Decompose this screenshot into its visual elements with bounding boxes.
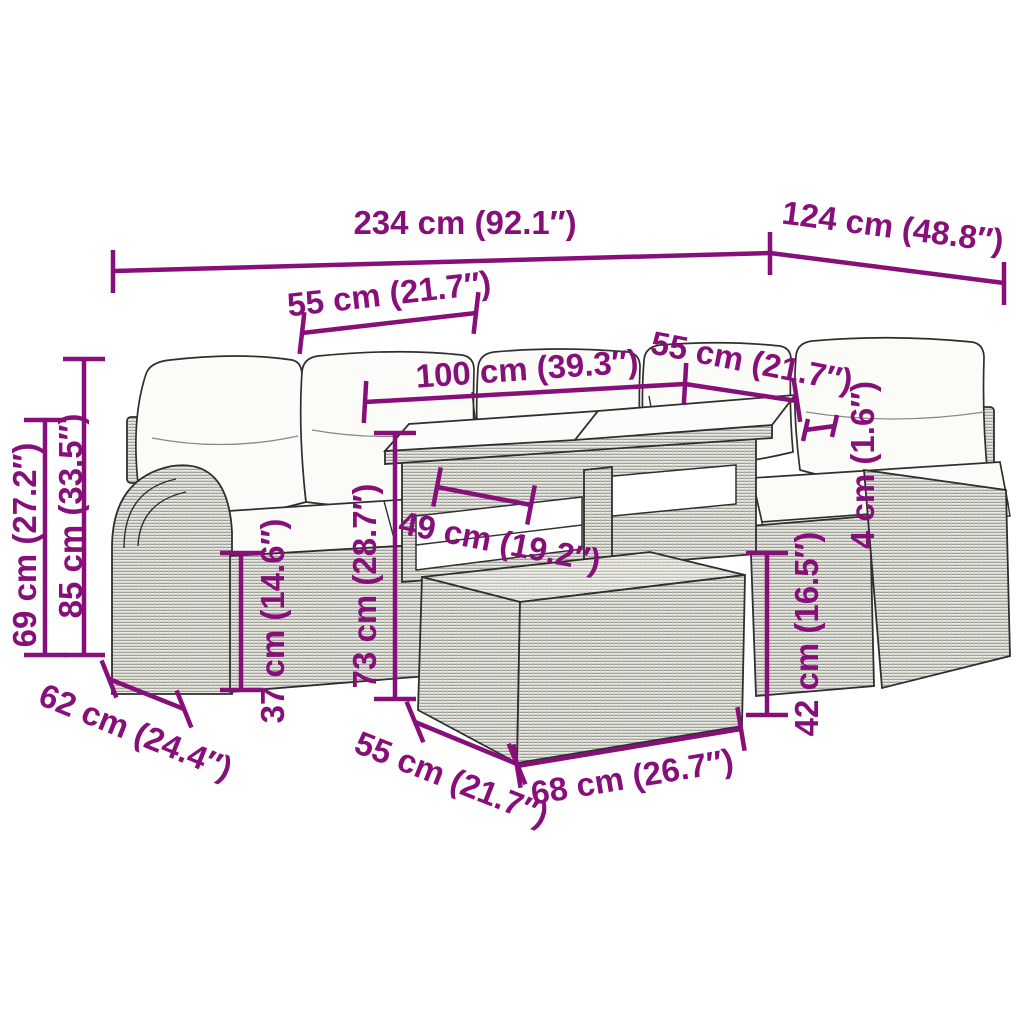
right-armchair-body [864, 470, 1010, 688]
dim-label-ottoman-height: 42 cm (16.5″) [788, 532, 825, 737]
dim-label-total-width: 234 cm (92.1″) [353, 204, 576, 241]
dim-back-height: 85 cm (33.5″) [52, 359, 105, 655]
dim-label-seat-height: 37 cm (14.6″) [254, 519, 291, 724]
dim-label-armrest-height: 69 cm (27.2″) [6, 443, 43, 648]
diagram-canvas: 234 cm (92.1″) 124 cm (48.8″) 55 cm (21.… [0, 0, 1024, 1024]
ottoman [418, 552, 745, 763]
ottoman-left-face [418, 577, 520, 763]
dim-label-back-height: 85 cm (33.5″) [52, 414, 89, 619]
dim-left-seat-width: 55 cm (21.7″) [285, 264, 493, 354]
dim-total-depth: 124 cm (48.8″) [770, 194, 1006, 305]
dimension-diagram: 234 cm (92.1″) 124 cm (48.8″) 55 cm (21.… [0, 0, 1024, 1024]
dim-label-total-depth: 124 cm (48.8″) [780, 194, 1006, 260]
left-armrest [112, 465, 232, 694]
dim-label-top-thickness: 4 cm (1.6″) [844, 381, 881, 549]
dim-label-table-height: 73 cm (28.7″) [346, 484, 383, 689]
